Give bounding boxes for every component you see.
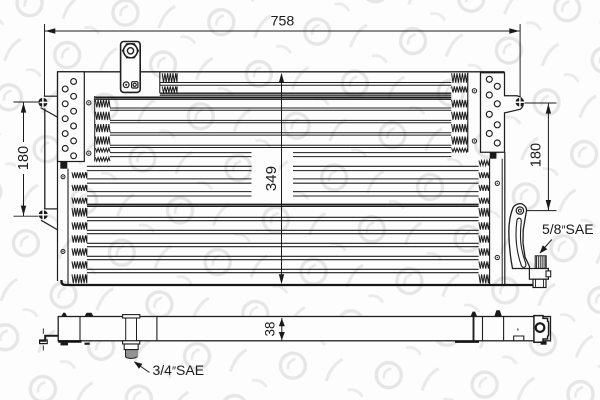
svg-text:38: 38 bbox=[263, 322, 278, 337]
svg-text:5/8″SAE: 5/8″SAE bbox=[542, 221, 594, 237]
svg-text:180: 180 bbox=[16, 146, 32, 170]
svg-text:3/4″SAE: 3/4″SAE bbox=[153, 362, 205, 378]
svg-text:758: 758 bbox=[271, 14, 295, 30]
svg-text:349: 349 bbox=[263, 166, 280, 191]
svg-text:180: 180 bbox=[528, 143, 544, 167]
